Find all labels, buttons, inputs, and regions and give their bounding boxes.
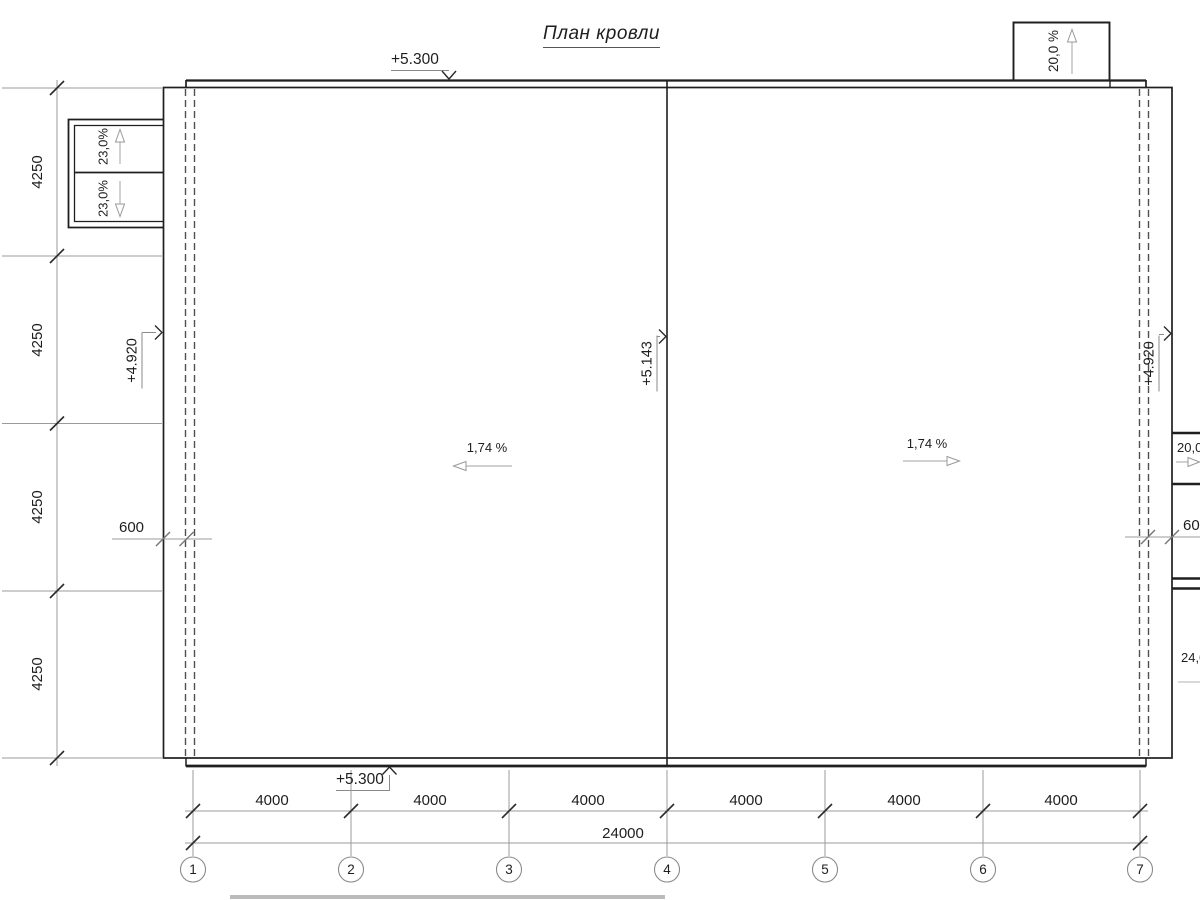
grid-bubble-5: 5 bbox=[810, 856, 840, 884]
elevation-label-bottom: +5.300 bbox=[336, 772, 384, 788]
entrance-canopy bbox=[69, 120, 164, 228]
slope-arrow-up-icon bbox=[1068, 30, 1077, 43]
slope-label-main-left: 1,74 % bbox=[452, 441, 522, 455]
elevation-label-top: +5.300 bbox=[391, 52, 439, 68]
elevation-marks bbox=[142, 71, 1171, 791]
dim-left-bay-2: 4250 bbox=[30, 318, 46, 362]
drawing-title: План кровли bbox=[543, 24, 660, 48]
slope-arrow-up-icon bbox=[116, 130, 125, 143]
dim-bottom-bay-4: 4000 bbox=[716, 793, 776, 809]
elevation-label-left-eave: +4.920 bbox=[126, 333, 143, 389]
elevation-label-right-eave: +4.920 bbox=[1143, 336, 1160, 392]
slope-arrow-right-icon bbox=[947, 457, 960, 466]
dim-bottom-bay-5: 4000 bbox=[874, 793, 934, 809]
drawing-linework bbox=[0, 0, 1200, 900]
dim-bottom-bay-6: 4000 bbox=[1031, 793, 1091, 809]
dim-parapet-left: 600 bbox=[119, 520, 144, 536]
elevation-arrow-icon bbox=[442, 71, 456, 79]
grid-bubble-7: 7 bbox=[1125, 856, 1155, 884]
grid-bubble-6: 6 bbox=[968, 856, 998, 884]
roof-plan-drawing: План кровли +5.300 +5.300 +4.920 +5.143 … bbox=[0, 0, 1200, 900]
slope-label-main-right: 1,74 % bbox=[892, 437, 962, 451]
slope-label-right-lower: 24,0 % bbox=[1181, 651, 1200, 665]
slope-arrow-down-icon bbox=[116, 204, 125, 217]
elevation-label-ridge: +5.143 bbox=[641, 336, 658, 392]
bottom-edge-artifact bbox=[230, 895, 665, 899]
slope-label-entrance-lower: 23,0% bbox=[97, 175, 112, 223]
dim-left-bay-1: 4250 bbox=[30, 150, 46, 194]
dim-left-bay-3: 4250 bbox=[30, 485, 46, 529]
dim-parapet-right: 600 bbox=[1183, 518, 1200, 534]
dim-total-width: 24000 bbox=[591, 826, 655, 842]
dim-bottom-bay-3: 4000 bbox=[558, 793, 618, 809]
dim-bottom-bay-1: 4000 bbox=[242, 793, 302, 809]
elevation-arrow-icon bbox=[1164, 327, 1171, 341]
slope-label-entrance-upper: 23,0% bbox=[97, 123, 112, 171]
grid-bubble-4: 4 bbox=[652, 856, 682, 884]
dim-left-bay-4: 4250 bbox=[30, 652, 46, 696]
grid-bubble-3: 3 bbox=[494, 856, 524, 884]
grid-bubble-1: 1 bbox=[178, 856, 208, 884]
slope-arrow-right-icon bbox=[1188, 458, 1200, 467]
roof-slope-arrows bbox=[454, 457, 960, 471]
dimension-ticks bbox=[50, 81, 1147, 850]
slope-arrow-left-icon bbox=[454, 462, 467, 471]
right-attachment bbox=[1172, 433, 1200, 682]
elevation-arrow-icon bbox=[383, 767, 397, 775]
dimension-lines bbox=[2, 80, 1200, 856]
dim-bottom-bay-2: 4000 bbox=[400, 793, 460, 809]
elevation-arrow-icon bbox=[155, 326, 162, 340]
slope-label-right-upper: 20,0 % bbox=[1177, 441, 1200, 455]
slope-label-top-canopy: 20,0 % bbox=[1047, 23, 1063, 79]
elevation-arrow-icon bbox=[659, 330, 666, 344]
grid-bubble-2: 2 bbox=[336, 856, 366, 884]
